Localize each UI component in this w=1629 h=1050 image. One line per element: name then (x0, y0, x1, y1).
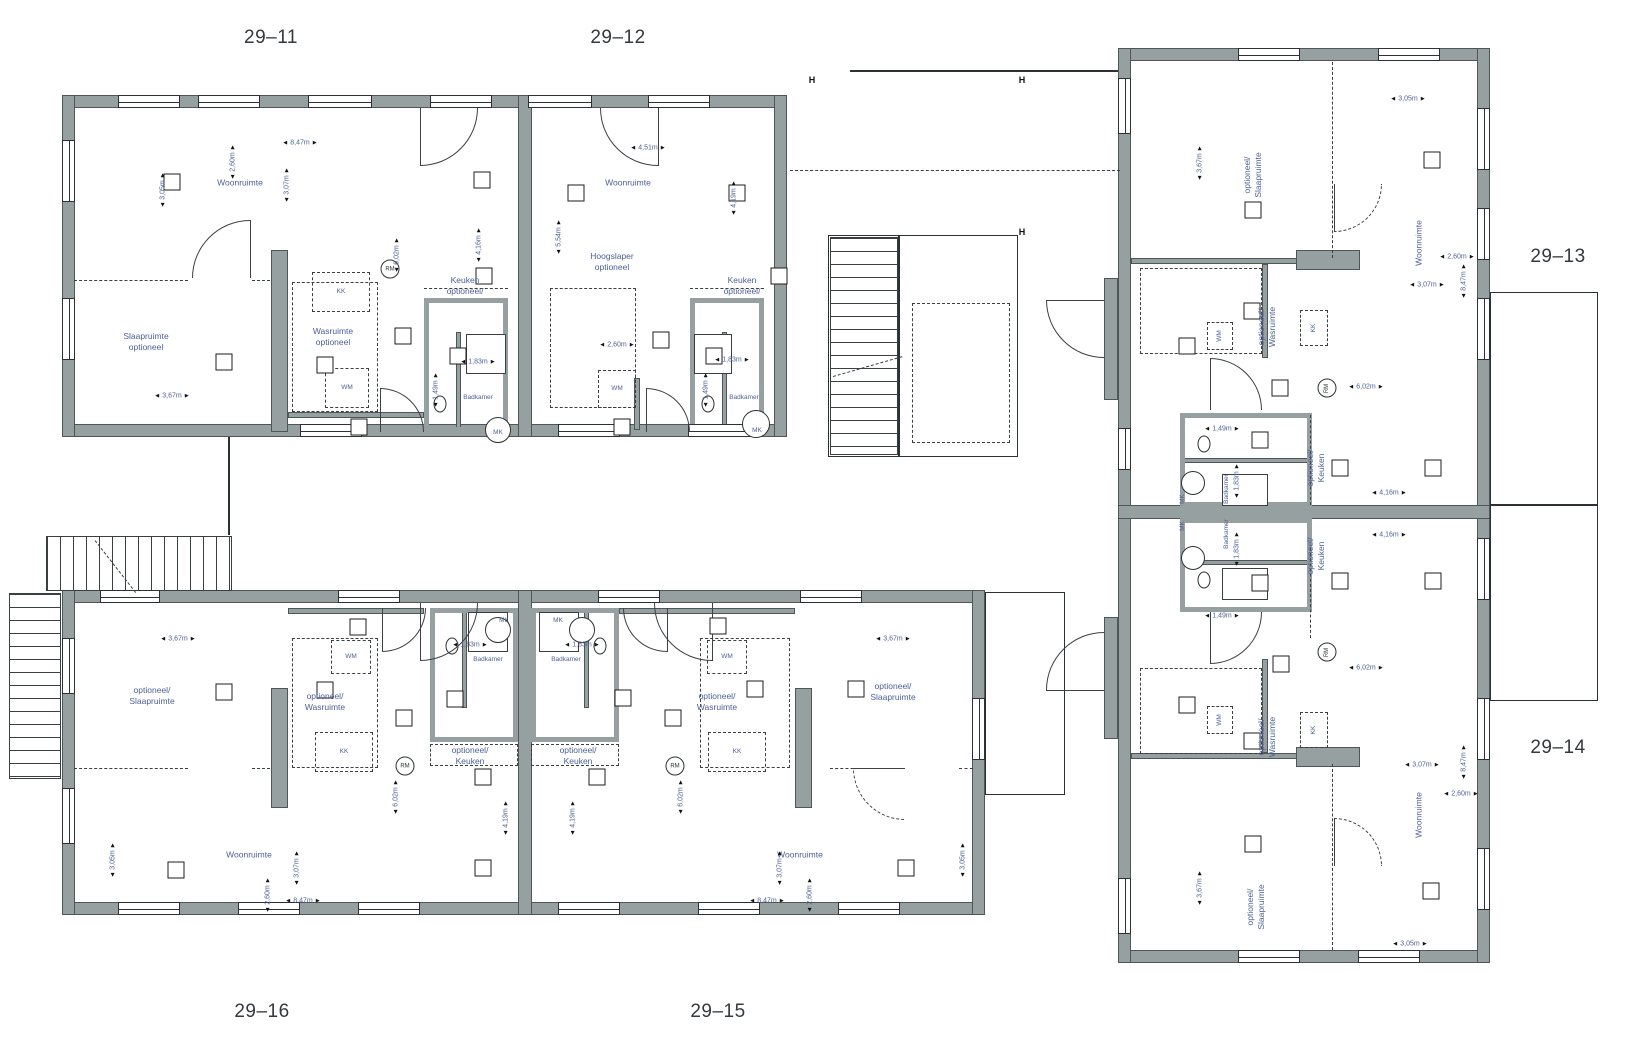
dimension-label: ◄ 3,67m ► (875, 636, 911, 643)
ventilation-icon (351, 419, 368, 436)
room-label: optioneel/ Slaapruimte (1245, 884, 1267, 929)
dimension-label: ◄ 2,60m ► (230, 144, 237, 180)
door-leaf (380, 388, 381, 432)
door-arc (1334, 184, 1382, 232)
dimension-value: 1,83m (572, 642, 591, 649)
handrail-marker: H (1019, 227, 1026, 237)
window (1238, 950, 1300, 963)
dimension-arrow-icon: ◄ (1348, 384, 1356, 391)
ventilation-icon (1179, 338, 1196, 355)
dimension-arrow-icon: ► (570, 800, 577, 808)
ventilation-icon (1425, 460, 1442, 477)
dimension-label: ◄ 8,47m ► (285, 898, 321, 905)
unit-number-label: 29–16 (234, 1001, 289, 1023)
room-label: optioneel/ Wasruimte (305, 691, 345, 713)
door-arc (1046, 300, 1104, 358)
window (100, 590, 160, 603)
room-label: optioneel/ Wasruimte (697, 691, 737, 713)
ventilation-icon (474, 172, 491, 189)
door-leaf (382, 608, 383, 652)
dimension-value: 4,16m (476, 235, 483, 254)
dimension-value: 4,19m (731, 188, 738, 207)
dimension-arrow-icon: ◄ (476, 255, 483, 263)
wall (774, 95, 787, 437)
ventilation-icon (1424, 152, 1441, 169)
dimension-arrow-icon: ► (1376, 665, 1384, 672)
dashed-wall (252, 280, 270, 281)
window (308, 95, 372, 108)
ventilation-icon (475, 860, 492, 877)
room-label: KK (340, 748, 349, 756)
dashed-wall (1332, 764, 1333, 950)
dimension-arrow-icon: ◄ (1371, 532, 1379, 539)
window (62, 298, 75, 360)
wall (1296, 747, 1360, 767)
dimension-value: 3,05m (960, 850, 967, 869)
dimension-label: ◄ 1,49m ► (433, 372, 440, 408)
dimension-arrow-icon: ► (1432, 762, 1440, 769)
dimension-value: 3,07m (1417, 282, 1436, 289)
window (358, 902, 420, 915)
toilet-icon (1198, 436, 1211, 453)
dimension-arrow-icon: ► (1467, 254, 1475, 261)
room-label: Keuken optioneel/ (724, 275, 761, 297)
shower-icon (466, 334, 506, 374)
dimension-value: 3,67m (1197, 878, 1204, 897)
ventilation-icon (1179, 697, 1196, 714)
dimension-arrow-icon: ► (777, 850, 784, 858)
dimension-arrow-icon: ◄ (714, 357, 722, 364)
dimension-value: 1,49m (433, 380, 440, 399)
smoke-detector-label: RM (1324, 383, 1330, 392)
dimension-arrow-icon: ◄ (556, 247, 563, 255)
dimension-arrow-icon: ◄ (284, 195, 291, 203)
room-label: Badkamer (473, 656, 503, 664)
dimension-arrow-icon: ► (1399, 532, 1407, 539)
dimension-value: 1,83m (1234, 539, 1241, 558)
dimension-arrow-icon: ◄ (1234, 491, 1241, 499)
unit-number-label: 29–13 (1530, 246, 1585, 268)
ventilation-icon (396, 710, 413, 727)
dimension-arrow-icon: ► (903, 636, 911, 643)
dimension-value: 4,16m (1379, 532, 1398, 539)
window (1477, 108, 1490, 170)
ventilation-icon (1272, 380, 1289, 397)
dimension-label: ◄ 3,67m ► (160, 636, 196, 643)
dimension-value: 1,83m (722, 357, 741, 364)
dimension-arrow-icon: ◄ (230, 172, 237, 180)
dimension-arrow-icon: ► (658, 145, 666, 152)
dimension-label: ◄ 3,05m ► (110, 842, 117, 878)
room-label: WM (345, 653, 357, 661)
dimension-label: ◄ 6,02m ► (1348, 665, 1384, 672)
window (528, 95, 592, 108)
balcony (985, 592, 1065, 795)
dimension-label: ◄ 3,07m ► (284, 167, 291, 203)
room-label: MK (553, 617, 563, 625)
dimension-value: 2,60m (1447, 254, 1466, 261)
floor-plan-canvas: floor-plan RMRMRMRMRMHHH29–1129–1229–132… (0, 0, 1629, 1050)
dimension-arrow-icon: ◄ (1204, 426, 1212, 433)
dimension-arrow-icon: ► (556, 219, 563, 227)
dimension-arrow-icon: ► (960, 842, 967, 850)
window (1477, 538, 1490, 600)
window (338, 590, 400, 603)
dashed-wall (74, 280, 188, 281)
room-label: KK (337, 288, 346, 296)
dimension-value: 6,02m (394, 245, 401, 264)
door-arc (420, 108, 478, 166)
dimension-label: ◄ 3,05m ► (1390, 96, 1426, 103)
smoke-detector-label: RM (1324, 647, 1330, 656)
dimension-label: ◄ 4,16m ► (1371, 532, 1407, 539)
window (558, 902, 620, 915)
dimension-arrow-icon: ► (284, 167, 291, 175)
room-label: Badkamer (463, 394, 493, 402)
dimension-arrow-icon: ► (1471, 791, 1479, 798)
dimension-label: ◄ 1,83m ► (460, 359, 496, 366)
wall (1118, 950, 1490, 963)
window (1477, 298, 1490, 360)
wall (271, 688, 288, 808)
dimension-arrow-icon: ► (182, 393, 190, 400)
dimension-arrow-icon: ◄ (452, 642, 460, 649)
dimension-arrow-icon: ◄ (1439, 254, 1447, 261)
room-label: optioneel/ Keuken (452, 745, 489, 767)
boiler-icon (569, 617, 595, 643)
dashed-wall (252, 768, 270, 769)
room-label: Woonruimte (777, 849, 823, 860)
unit-number-label: 29–12 (590, 27, 645, 49)
dimension-label: ◄ 6,02m ► (393, 779, 400, 815)
ventilation-icon (1423, 883, 1440, 900)
dimension-label: ◄ 3,05m ► (160, 172, 167, 208)
window (558, 424, 620, 437)
window (1238, 48, 1300, 61)
dimension-arrow-icon: ► (1197, 870, 1204, 878)
room-label: WM (721, 653, 733, 661)
dimension-label: ◄ 1,49m ► (1204, 426, 1240, 433)
ventilation-icon (1332, 573, 1349, 590)
dimension-arrow-icon: ◄ (777, 878, 784, 886)
dimension-arrow-icon: ◄ (1461, 291, 1468, 299)
door-leaf (420, 108, 421, 166)
dimension-value: 3,07m (294, 858, 301, 877)
dimension-value: 8,47m (1461, 271, 1468, 290)
window (62, 638, 75, 694)
dimension-arrow-icon: ◄ (570, 828, 577, 836)
door-leaf (1046, 300, 1104, 301)
wall (795, 688, 812, 808)
room-label: Wasruimte optioneel (313, 326, 353, 348)
dimension-arrow-icon: ◄ (1348, 665, 1356, 672)
ventilation-icon (589, 769, 606, 786)
wall (518, 95, 532, 437)
dimension-value: 2,60m (607, 342, 626, 349)
dimension-value: 8,47m (1461, 752, 1468, 771)
ventilation-icon (1245, 202, 1262, 219)
door-arc (853, 768, 905, 820)
dimension-arrow-icon: ◄ (1197, 173, 1204, 181)
dimension-label: ◄ 3,05m ► (960, 842, 967, 878)
dimension-value: 2,60m (265, 885, 272, 904)
dimension-label: ◄ 6,02m ► (678, 779, 685, 815)
dimension-arrow-icon: ► (110, 842, 117, 850)
ventilation-icon (1332, 460, 1349, 477)
dimension-arrow-icon: ◄ (875, 636, 883, 643)
dimension-value: 4,19m (570, 808, 577, 827)
room-label: WM (1216, 330, 1224, 342)
room-label: MK (493, 429, 503, 437)
dimension-arrow-icon: ◄ (154, 393, 162, 400)
dimension-label: ◄ 3,07m ► (777, 850, 784, 886)
dimension-arrow-icon: ◄ (630, 145, 638, 152)
dimension-label: ◄ 5,54m ► (556, 219, 563, 255)
ventilation-icon (216, 684, 233, 701)
dimension-arrow-icon: ◄ (1197, 898, 1204, 906)
door-leaf (1210, 612, 1211, 664)
dimension-arrow-icon: ► (678, 779, 685, 787)
toilet-icon (1198, 572, 1211, 589)
unit-number-label: 29–15 (690, 1001, 745, 1023)
dimension-label: ◄ 1,49m ► (1204, 613, 1240, 620)
ventilation-icon (898, 860, 915, 877)
ventilation-icon (1252, 575, 1269, 592)
ventilation-icon (771, 268, 788, 285)
dimension-arrow-icon: ► (1197, 145, 1204, 153)
dimension-arrow-icon: ► (503, 800, 510, 808)
dimension-value: 3,05m (1400, 941, 1419, 948)
door-arc (600, 108, 658, 166)
wall (1118, 505, 1490, 519)
dimension-label: ◄ 2,60m ► (807, 877, 814, 913)
dimension-arrow-icon: ◄ (1371, 490, 1379, 497)
ventilation-icon (615, 690, 632, 707)
balcony (1490, 505, 1598, 701)
ventilation-icon (350, 619, 367, 636)
window (1378, 48, 1440, 61)
dimension-value: 3,07m (777, 858, 784, 877)
dimension-value: 1,49m (1212, 613, 1231, 620)
dimension-label: ◄ 8,47m ► (1461, 744, 1468, 780)
room-label: Badkamer (551, 656, 581, 664)
door-arc (1334, 818, 1382, 866)
room-label: optioneel/ Keuken (560, 745, 597, 767)
room-label: Badkamer (729, 394, 759, 402)
room-label: Woonruimte (1413, 792, 1424, 838)
room-label: Hoogslaper optioneel (590, 251, 633, 273)
dimension-arrow-icon: ► (592, 642, 600, 649)
window (1477, 698, 1490, 760)
ventilation-icon (1252, 432, 1269, 449)
ventilation-icon (395, 328, 412, 345)
dimension-arrow-icon: ◄ (807, 905, 814, 913)
door-leaf (667, 608, 668, 652)
door-leaf (1210, 358, 1211, 410)
dimension-arrow-icon: ◄ (460, 359, 468, 366)
wall (1104, 617, 1118, 739)
smoke-detector-icon: RM (396, 757, 415, 776)
dimension-label: ◄ 4,16m ► (476, 227, 483, 263)
dimension-value: 1,49m (1212, 426, 1231, 433)
dimension-arrow-icon: ◄ (1409, 282, 1417, 289)
dimension-arrow-icon: ◄ (1392, 941, 1400, 948)
room-label: optioneel/ Keuken (1305, 538, 1327, 575)
room-label: Keuken optioneel/ (447, 275, 484, 297)
dimension-value: 8,47m (293, 898, 312, 905)
room-label: Woonruimte (605, 177, 651, 188)
dimension-arrow-icon: ► (1461, 263, 1468, 271)
line (850, 70, 1118, 72)
dimension-label: ◄ 6,02m ► (394, 237, 401, 273)
dimension-label: ◄ 2,60m ► (1439, 254, 1475, 261)
dimension-arrow-icon: ► (265, 877, 272, 885)
room-label: MK (1179, 494, 1187, 504)
dimension-arrow-icon: ► (394, 237, 401, 245)
dimension-arrow-icon: ► (476, 227, 483, 235)
dimension-value: 4,51m (638, 145, 657, 152)
smoke-detector-icon: RM (1318, 379, 1337, 398)
room-label: KK (1310, 324, 1318, 333)
ventilation-icon (1273, 656, 1290, 673)
room-label: Woonruimte (217, 177, 263, 188)
ventilation-icon (1425, 573, 1442, 590)
dimension-arrow-icon: ► (807, 877, 814, 885)
room-label: optioneel/ Slaapruimte (1242, 152, 1264, 197)
dimension-value: 3,05m (110, 850, 117, 869)
room-label: KK (733, 748, 742, 756)
door-leaf (853, 768, 905, 769)
dimension-value: 2,60m (1451, 791, 1470, 798)
dimension-value: 1,49m (703, 380, 710, 399)
dimension-arrow-icon: ► (313, 898, 321, 905)
dimension-label: ◄ 3,07m ► (1409, 282, 1445, 289)
room-label: WM (611, 385, 623, 393)
dimension-arrow-icon: ◄ (1234, 559, 1241, 567)
unit-number-label: 29–14 (1530, 737, 1585, 759)
window (1118, 428, 1131, 470)
dimension-arrow-icon: ◄ (285, 898, 293, 905)
dimension-value: 3,05m (160, 180, 167, 199)
ventilation-icon (710, 618, 727, 635)
dimension-arrow-icon: ► (160, 172, 167, 180)
room-label: Woonruimte (226, 849, 272, 860)
dimension-arrow-icon: ► (310, 140, 318, 147)
door-leaf (1334, 818, 1335, 866)
dimension-arrow-icon: ► (627, 342, 635, 349)
window (800, 590, 862, 603)
door-leaf (250, 220, 251, 278)
dimension-arrow-icon: ► (1420, 941, 1428, 948)
wall (1104, 278, 1118, 400)
dimension-label: ◄ 1,83m ► (1234, 463, 1241, 499)
dimension-arrow-icon: ◄ (749, 898, 757, 905)
dimension-label: ◄ 4,51m ► (630, 145, 666, 152)
dimension-value: 8,47m (290, 140, 309, 147)
wall (1131, 258, 1307, 264)
dimension-label: ◄ 2,60m ► (265, 877, 272, 913)
dimension-arrow-icon: ◄ (433, 400, 440, 408)
door-leaf (1334, 184, 1335, 232)
ventilation-icon (747, 681, 764, 698)
dimension-arrow-icon: ► (230, 144, 237, 152)
ventilation-icon (653, 332, 670, 349)
window (62, 140, 75, 202)
dimension-arrow-icon: ◄ (1404, 762, 1412, 769)
ventilation-icon (317, 357, 334, 374)
door-arc (192, 220, 250, 278)
dimension-arrow-icon: ► (1234, 463, 1241, 471)
room-label: optioneel/ Slaapruimte (129, 685, 174, 707)
room-label: optioneel/ Wasruimte (1256, 307, 1278, 347)
dimension-arrow-icon: ► (742, 357, 750, 364)
dimension-arrow-icon: ◄ (1443, 791, 1451, 798)
door-arc (380, 388, 424, 432)
dimension-label: ◄ 4,16m ► (1371, 490, 1407, 497)
dimension-value: 3,67m (1197, 153, 1204, 172)
dimension-label: ◄ 6,02m ► (1348, 384, 1384, 391)
dimension-label: ◄ 1,83m ► (564, 642, 600, 649)
ventilation-icon (568, 185, 585, 202)
dashed-wall (959, 768, 973, 769)
room-label: Slaapruimte optioneel (123, 331, 168, 353)
window (688, 424, 750, 437)
room-label: optioneel/ Slaapruimte (870, 681, 915, 703)
door-arc (623, 608, 667, 652)
window (1118, 78, 1131, 134)
room-label: optioneel/ Wasruimte (1256, 717, 1278, 757)
dashed-wall (790, 170, 1120, 171)
dimension-arrow-icon: ◄ (1461, 772, 1468, 780)
dimension-label: ◄ 2,60m ► (1443, 791, 1479, 798)
dimension-arrow-icon: ► (1418, 96, 1426, 103)
dimension-label: ◄ 4,19m ► (503, 800, 510, 836)
dimension-label: ◄ 1,49m ► (703, 372, 710, 408)
stairs (830, 237, 898, 455)
dimension-arrow-icon: ► (777, 898, 785, 905)
dashed-wall (74, 768, 188, 769)
dimension-value: 1,83m (468, 359, 487, 366)
dimension-arrow-icon: ► (1399, 490, 1407, 497)
window (118, 95, 180, 108)
smoke-detector-label: RM (400, 763, 409, 769)
dimension-label: ◄ 3,67m ► (1197, 145, 1204, 181)
door-arc (1210, 358, 1262, 410)
dimension-value: 3,07m (284, 175, 291, 194)
wall (1296, 250, 1360, 270)
dimension-label: ◄ 1,83m ► (1234, 531, 1241, 567)
dimension-arrow-icon: ► (433, 372, 440, 380)
dimension-arrow-icon: ► (1232, 613, 1240, 620)
dimension-value: 5,54m (556, 227, 563, 246)
stairs (9, 593, 61, 779)
room-label: Woonruimte (1413, 220, 1424, 266)
window (838, 902, 900, 915)
ventilation-icon (447, 691, 464, 708)
dimension-label: ◄ 2,60m ► (599, 342, 635, 349)
dimension-arrow-icon: ► (488, 359, 496, 366)
dimension-arrow-icon: ► (393, 779, 400, 787)
dimension-value: 3,05m (1398, 96, 1417, 103)
dimension-arrow-icon: ◄ (393, 807, 400, 815)
ventilation-icon (168, 862, 185, 879)
smoke-detector-label: RM (670, 763, 679, 769)
dimension-arrow-icon: ◄ (1204, 613, 1212, 620)
dimension-value: 8,47m (757, 898, 776, 905)
dimension-label: ◄ 1,83m ► (714, 357, 750, 364)
dimension-arrow-icon: ◄ (503, 828, 510, 836)
dimension-arrow-icon: ► (731, 180, 738, 188)
